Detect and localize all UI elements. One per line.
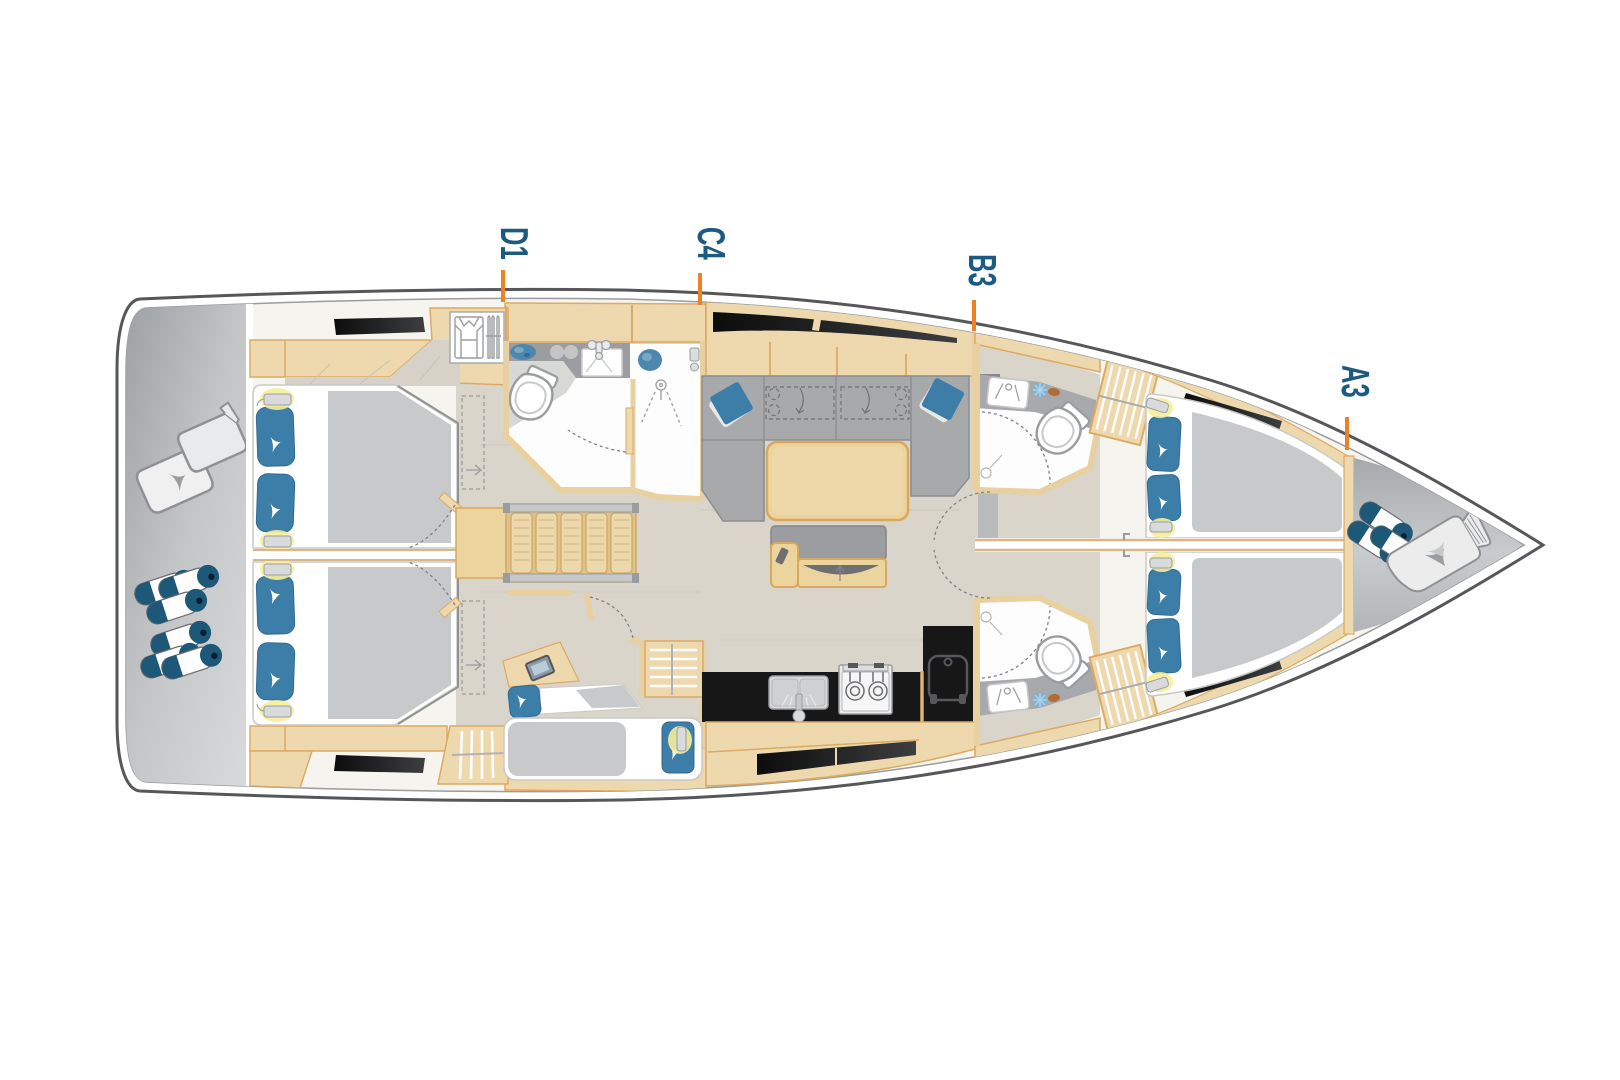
svg-text:B3: B3 [961,254,1005,287]
svg-text:D1: D1 [493,227,537,260]
svg-text:A3: A3 [1334,365,1378,398]
svg-text:C4: C4 [690,227,734,260]
